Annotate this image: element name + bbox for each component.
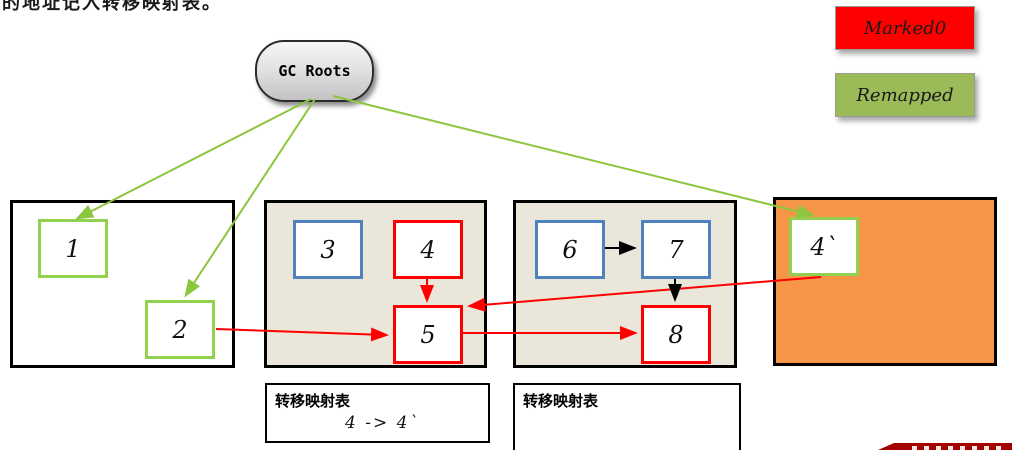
object-box-4: 4 xyxy=(393,220,463,279)
forwarding-table-entry: 4 -> 4` xyxy=(345,413,420,433)
object-label: 5 xyxy=(420,321,435,349)
object-label: 4 xyxy=(420,236,435,264)
gc-roots-node: GC Roots xyxy=(255,40,374,102)
object-box-2: 2 xyxy=(145,300,215,359)
page-title: 的地址记入转移映射表。 xyxy=(2,0,222,15)
watermark-text-clipped xyxy=(912,446,1002,450)
legend-marked0: Marked0 xyxy=(835,6,975,50)
object-box-5: 5 xyxy=(393,305,463,364)
forwarding-table-title: 转移映射表 xyxy=(523,390,598,411)
object-box-3: 3 xyxy=(293,220,363,279)
object-label: 6 xyxy=(562,236,577,264)
forwarding-table-region-3: 转移映射表 xyxy=(513,383,741,450)
object-box-1: 1 xyxy=(38,219,108,278)
object-label: 1 xyxy=(65,235,80,263)
gc-roots-label: GC Roots xyxy=(278,62,350,80)
object-box-8: 8 xyxy=(641,305,711,364)
object-box-7: 7 xyxy=(641,220,711,279)
legend-marked0-label: Marked0 xyxy=(864,18,946,39)
arrow-gcroots-to-box4prime xyxy=(333,96,812,215)
object-label: 4` xyxy=(810,233,837,261)
object-label: 8 xyxy=(668,321,683,349)
forwarding-table-title: 转移映射表 xyxy=(275,390,350,411)
object-box-4-prime: 4` xyxy=(789,217,859,276)
legend-remapped: Remapped xyxy=(835,73,975,117)
zgc-relocation-diagram: 的地址记入转移映射表。 Marked0 Remapped GC Roots 1 … xyxy=(0,0,1012,450)
legend-remapped-label: Remapped xyxy=(856,85,953,106)
watermark-banner xyxy=(878,443,1012,450)
object-label: 7 xyxy=(668,236,683,264)
forwarding-table-region-2: 转移映射表 4 -> 4` xyxy=(265,383,490,443)
object-box-6: 6 xyxy=(535,220,605,279)
object-label: 3 xyxy=(320,236,335,264)
object-label: 2 xyxy=(172,316,187,344)
